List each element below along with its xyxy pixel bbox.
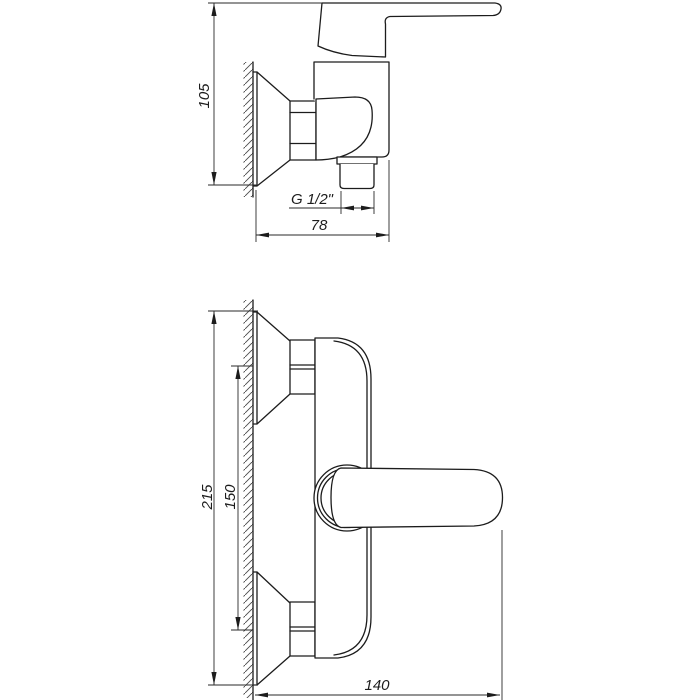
faucet-body (314, 338, 503, 658)
faucet-body (314, 3, 501, 189)
wall-section (244, 300, 254, 700)
dim-label-thread: G 1/2" (291, 191, 334, 208)
escutcheon (253, 72, 316, 186)
arrowhead-left (341, 206, 354, 211)
wall-hatching (244, 62, 254, 197)
arrowhead-right (487, 693, 500, 698)
arrowhead-right (361, 206, 374, 211)
side-view: 105 G 1/2" 78 (196, 3, 501, 242)
dim-label-215: 215 (199, 484, 216, 511)
dimension-thread: G 1/2" (289, 191, 374, 214)
connector-nut (290, 602, 315, 656)
lever-handle (318, 3, 501, 57)
escutcheon-cone (253, 312, 290, 424)
dim-label-78: 78 (311, 217, 328, 234)
arrowhead-left (255, 693, 268, 698)
arrowhead-up (211, 311, 216, 324)
arrowhead-up (211, 3, 216, 16)
technical-drawing-canvas: 105 G 1/2" 78 (0, 0, 700, 700)
connector-nut (290, 101, 316, 160)
arrowhead-right (376, 233, 389, 238)
arrowhead-left (256, 233, 269, 238)
escutcheon-bottom (253, 572, 315, 685)
escutcheon-top (253, 312, 315, 424)
arrowhead-down (211, 672, 216, 685)
dim-label-140: 140 (364, 677, 390, 694)
connector-nut (290, 340, 315, 394)
escutcheon-cone (253, 72, 290, 186)
lever-handle-front (331, 468, 503, 528)
dim-label-105: 105 (196, 83, 213, 109)
arrowhead-down (235, 617, 240, 630)
dim-label-150: 150 (222, 484, 239, 510)
wall-hatching (244, 300, 254, 698)
arrowhead-down (211, 172, 216, 185)
wall-section (244, 62, 254, 197)
arrowhead-up (235, 366, 240, 379)
technical-drawing-page: 105 G 1/2" 78 (0, 0, 700, 700)
outlet-thread (340, 164, 374, 189)
front-view: 215 150 140 (199, 300, 503, 700)
escutcheon-cone (253, 572, 290, 685)
outlet-flange (337, 157, 377, 164)
